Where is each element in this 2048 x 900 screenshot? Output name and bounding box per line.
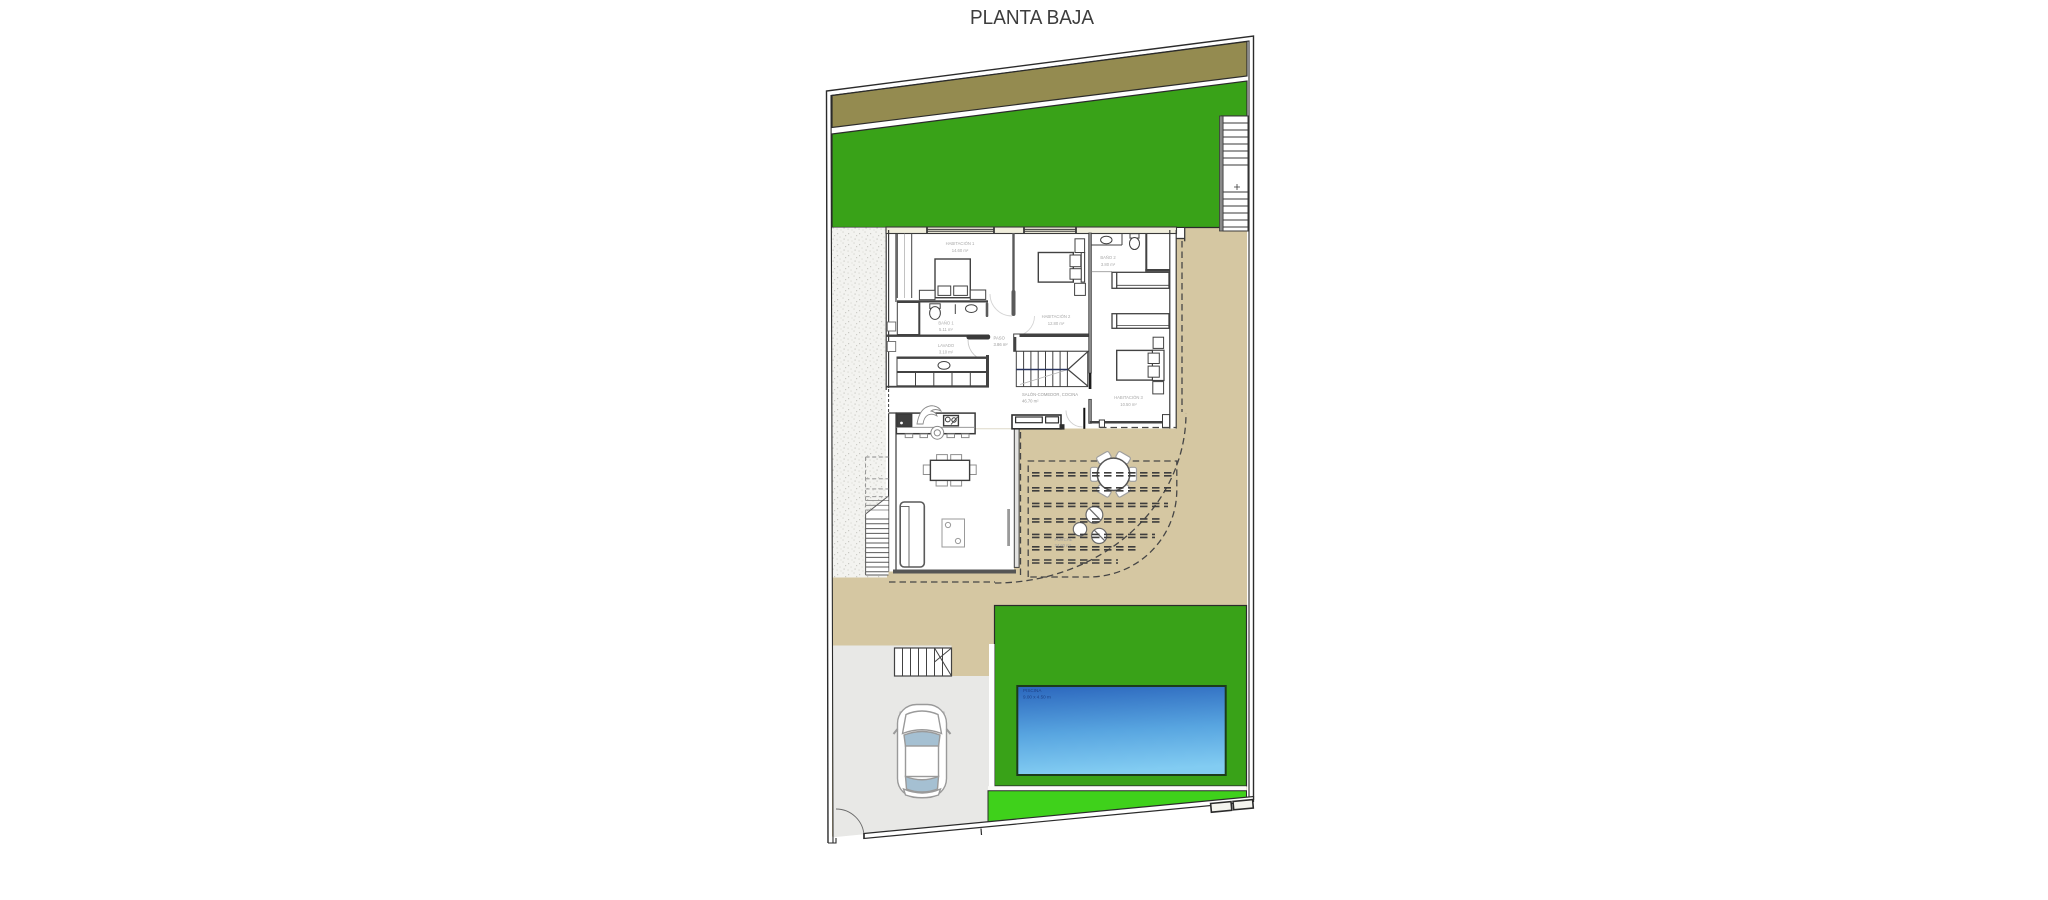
- svg-text:BAÑO 2: BAÑO 2: [1100, 255, 1116, 260]
- svg-text:SALÓN-COMEDOR, COCINA: SALÓN-COMEDOR, COCINA: [1022, 392, 1078, 397]
- svg-text:46.70 m²: 46.70 m²: [1022, 399, 1039, 404]
- svg-text:LAVADO: LAVADO: [938, 343, 955, 348]
- svg-text:PLANTA BAJA: PLANTA BAJA: [970, 6, 1094, 29]
- svg-text:24.60 m²: 24.60 m²: [1055, 543, 1072, 548]
- svg-text:3.80 m²: 3.80 m²: [1101, 262, 1116, 267]
- svg-text:5.11 m²: 5.11 m²: [939, 327, 953, 332]
- svg-text:3.86 m²: 3.86 m²: [994, 342, 1009, 347]
- svg-text:PISCINA: PISCINA: [1023, 688, 1042, 693]
- svg-text:14.60 m²: 14.60 m²: [952, 248, 969, 253]
- svg-text:12.80 m²: 12.80 m²: [1048, 321, 1065, 326]
- svg-text:BAÑO 1: BAÑO 1: [938, 321, 954, 326]
- svg-text:HABITACIÓN 1: HABITACIÓN 1: [946, 241, 975, 246]
- svg-text:HABITACIÓN 2: HABITACIÓN 2: [1042, 314, 1071, 319]
- svg-text:3.10 m²: 3.10 m²: [939, 350, 954, 355]
- svg-text:PORCHE: PORCHE: [1055, 537, 1073, 542]
- svg-text:10.50 m²: 10.50 m²: [1120, 402, 1137, 407]
- svg-text:HABITACIÓN 3: HABITACIÓN 3: [1114, 395, 1143, 400]
- svg-text:PASO: PASO: [994, 336, 1006, 341]
- svg-text:9.00 x 4.50 m: 9.00 x 4.50 m: [1023, 695, 1051, 700]
